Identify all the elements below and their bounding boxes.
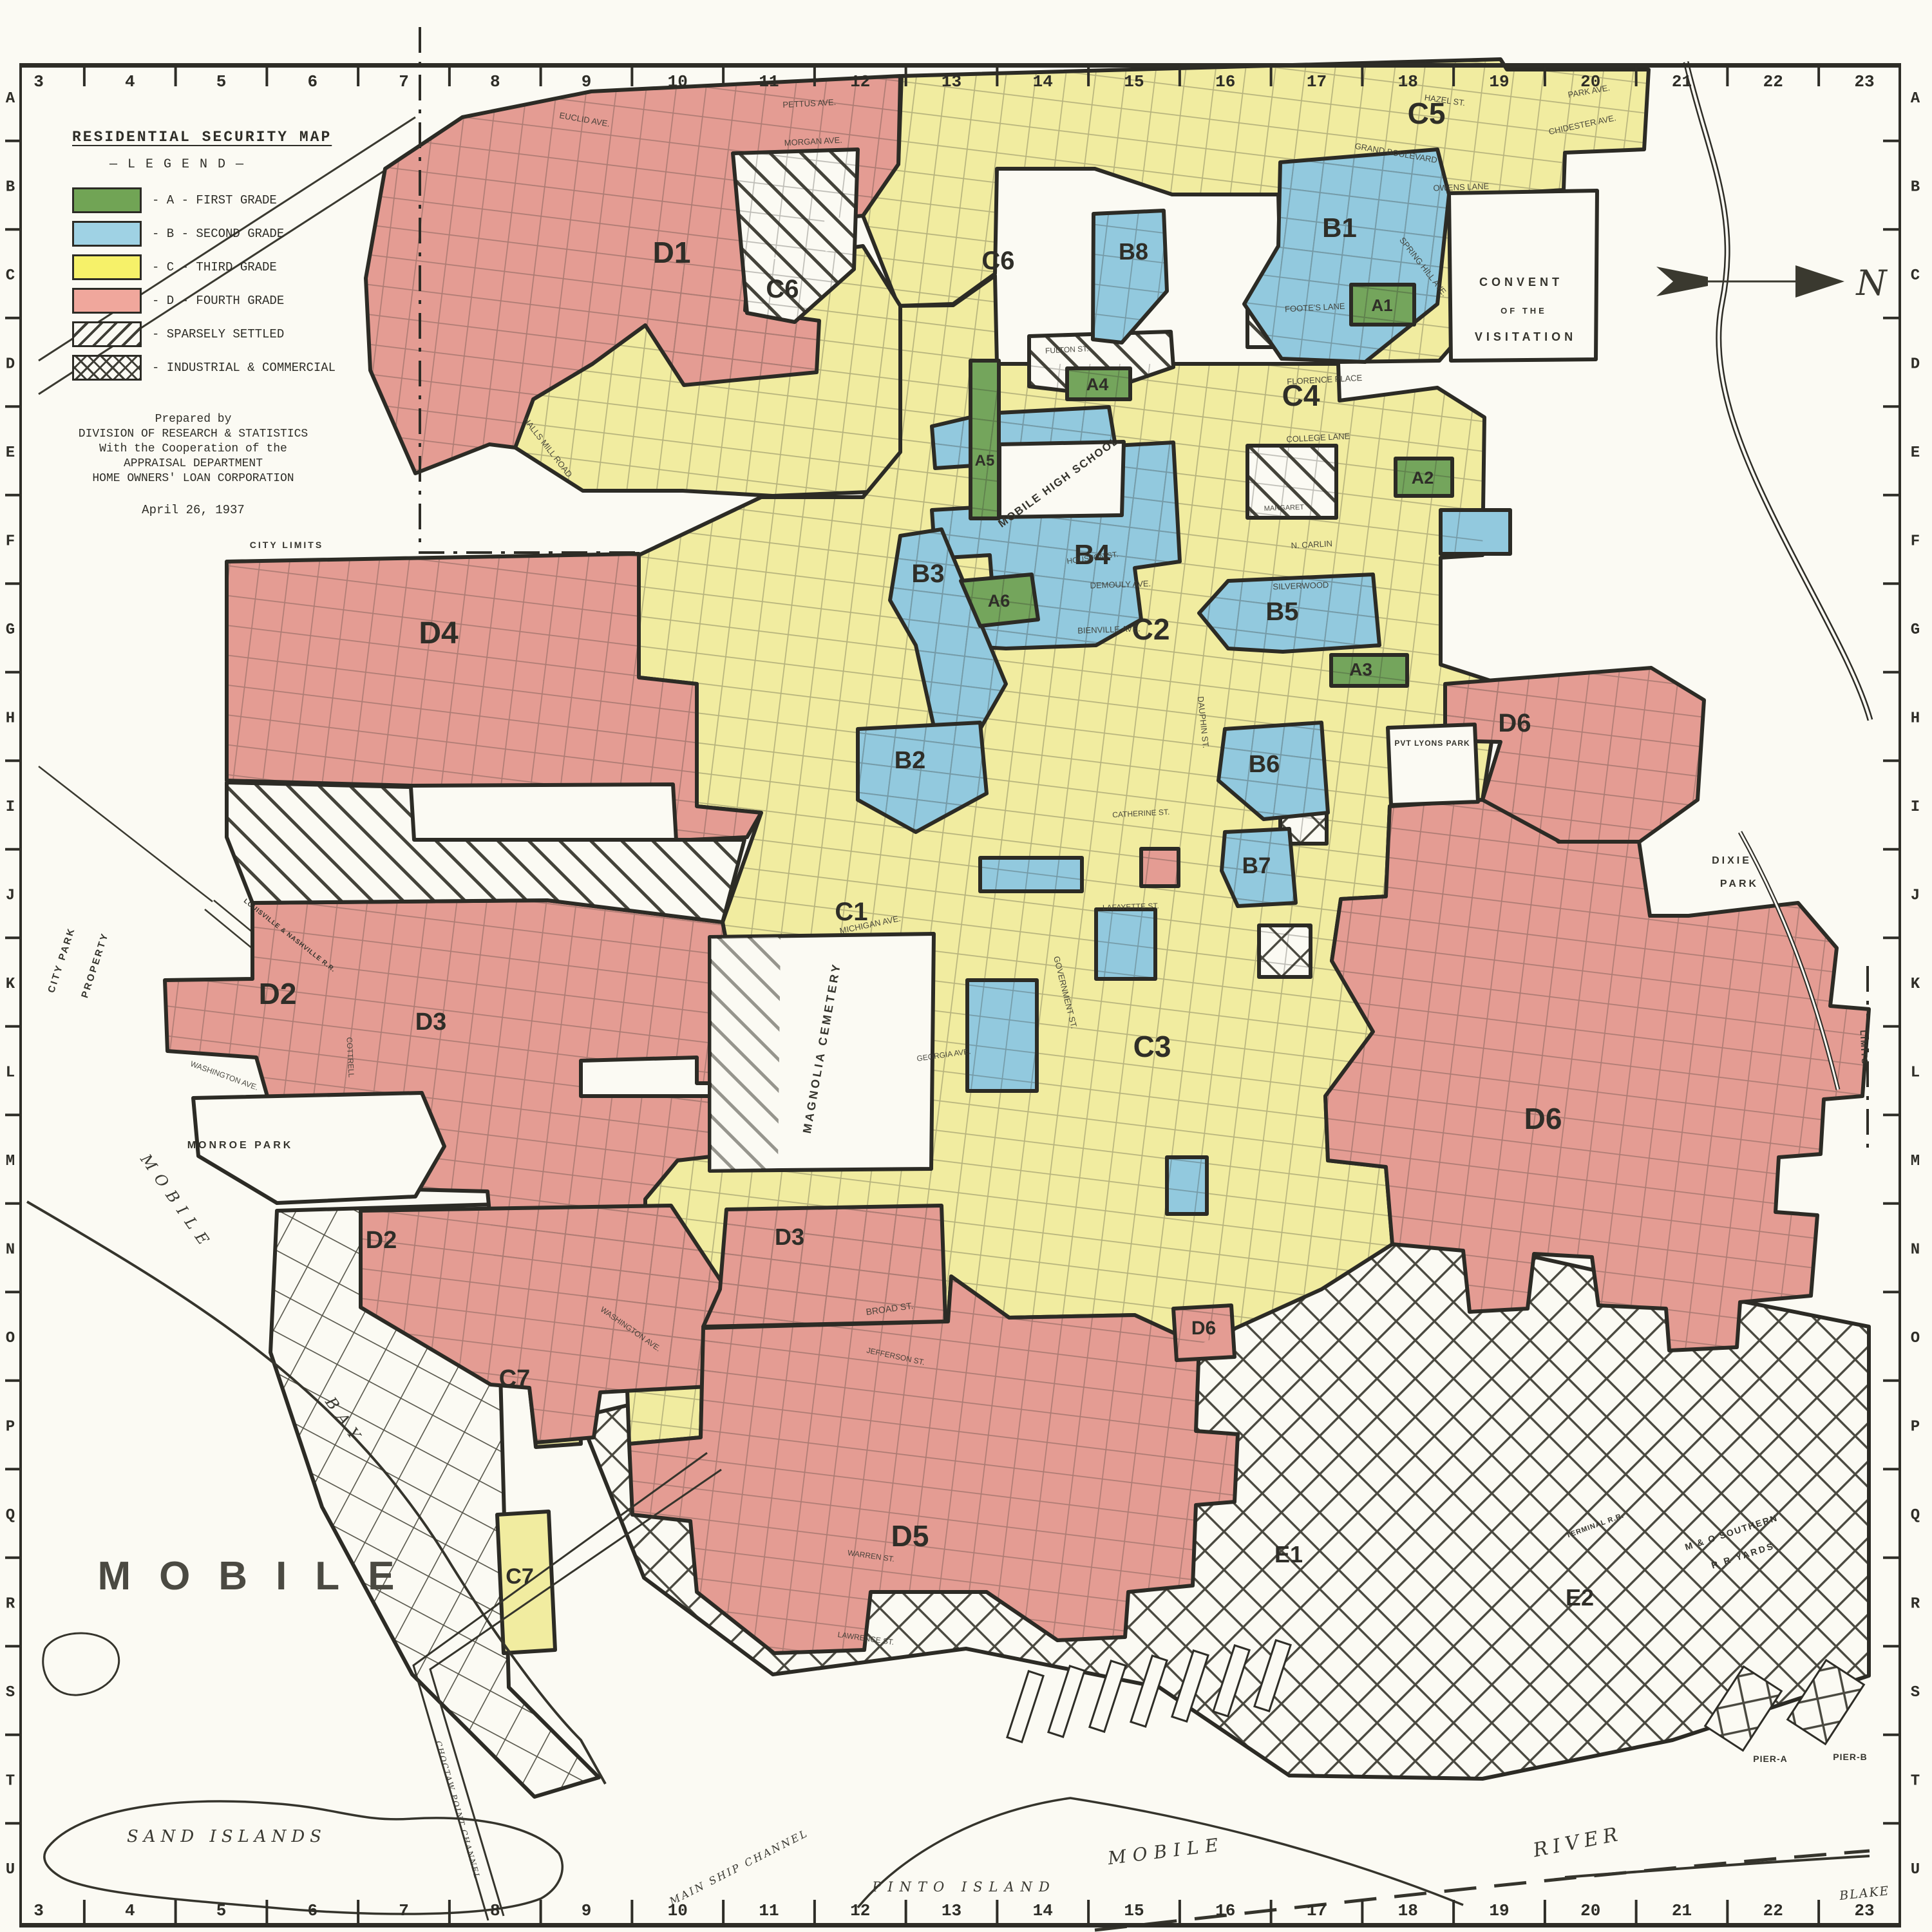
ruler-letter-left: M <box>6 1153 15 1170</box>
ruler-letter-right: J <box>1911 887 1920 905</box>
ruler-number-top: 22 <box>1763 72 1783 91</box>
credits-block: Prepared by DIVISION OF RESEARCH & STATI… <box>26 412 361 518</box>
ruler-tick <box>1883 1734 1901 1736</box>
ruler-letter-right: D <box>1911 356 1920 374</box>
ruler-number-bottom: 13 <box>942 1901 961 1920</box>
industrial-label: - INDUSTRIAL & COMMERCIAL <box>152 361 336 375</box>
sparsely-settled-label: - SPARSELY SETTLED <box>152 327 284 341</box>
ruler-tick <box>5 1734 22 1736</box>
place-label: CONVENT <box>1479 276 1563 289</box>
ruler-tick <box>1361 63 1363 86</box>
ruler-number-top: 18 <box>1398 72 1418 91</box>
ruler-tick <box>5 1822 22 1824</box>
ruler-tick <box>1883 1379 1901 1382</box>
ruler-tick <box>630 63 633 86</box>
credits-line: With the Cooperation of the <box>26 442 361 457</box>
ruler-tick <box>1883 1291 1901 1293</box>
ruler-tick <box>1452 1900 1455 1927</box>
ruler-number-top: 6 <box>307 72 317 91</box>
sparsely-settled-swatch <box>72 321 142 347</box>
place-label: VISITATION <box>1475 330 1577 343</box>
ruler-tick <box>5 228 22 231</box>
zone-label: D3 <box>415 1009 447 1036</box>
ruler-letter-right: S <box>1911 1684 1920 1701</box>
ruler-tick <box>996 1900 998 1927</box>
ruler-letter-left: A <box>6 90 15 108</box>
ruler-tick <box>1087 1900 1090 1927</box>
industrial-swatch <box>72 355 142 381</box>
ruler-letter-right: T <box>1911 1773 1920 1790</box>
ruler-tick <box>1883 1468 1901 1470</box>
ruler-tick <box>1179 1900 1181 1927</box>
ruler-number-bottom: 15 <box>1124 1901 1144 1920</box>
ruler-tick <box>5 1202 22 1205</box>
ruler-tick <box>1883 671 1901 674</box>
ruler-tick <box>5 848 22 851</box>
ruler-tick <box>905 1900 907 1927</box>
zone-label: E2 <box>1566 1584 1594 1611</box>
ruler-tick <box>1087 63 1090 86</box>
ruler-number-top: 5 <box>216 72 227 91</box>
place-label: DIXIE <box>1712 855 1752 866</box>
ruler-tick <box>265 1900 268 1927</box>
ruler-tick <box>905 63 907 86</box>
ruler-letter-right: M <box>1911 1153 1920 1170</box>
grade-b-label: - B - SECOND GRADE <box>152 227 284 241</box>
ruler-letter-right: K <box>1911 976 1920 993</box>
street-label: SILVERWOOD <box>1273 580 1329 591</box>
ruler-letter-right: U <box>1911 1861 1920 1879</box>
credits-line: Prepared by <box>26 412 361 427</box>
grade-c-swatch <box>72 254 142 280</box>
street-label: OWENS LANE <box>1433 181 1489 193</box>
grade-c-label: - C - THIRD GRADE <box>152 260 277 274</box>
zone-label: D6 <box>1524 1102 1562 1135</box>
zone-label: A1 <box>1371 296 1392 315</box>
ruler-number-bottom: 23 <box>1854 1901 1874 1920</box>
ruler-number-bottom: 4 <box>125 1901 135 1920</box>
ruler-letter-right: F <box>1911 533 1920 551</box>
ruler-tick <box>448 63 451 86</box>
ruler-tick <box>1726 1900 1728 1927</box>
water-label: SAND ISLANDS <box>127 1827 327 1846</box>
ruler-tick <box>5 494 22 497</box>
ruler-tick <box>1883 582 1901 585</box>
zone-label: C6 <box>981 247 1014 275</box>
grade-a-label: - A - FIRST GRADE <box>152 193 277 207</box>
ruler-tick <box>1544 1900 1546 1927</box>
credits-line: DIVISION OF RESEARCH & STATISTICS <box>26 427 361 442</box>
zone-label: B3 <box>911 560 944 588</box>
ruler-letter-left: J <box>6 887 15 905</box>
zone-label: C7 <box>506 1564 533 1589</box>
ruler-number-bottom: 16 <box>1215 1901 1235 1920</box>
ruler-tick <box>5 1113 22 1116</box>
place-label: CITY LIMITS <box>250 540 323 550</box>
ruler-number-top: 17 <box>1307 72 1327 91</box>
zone-label: D2 <box>366 1227 397 1254</box>
ruler-number-bottom: 20 <box>1580 1901 1600 1920</box>
zone-label: A4 <box>1086 375 1109 394</box>
place-label: PIER-B <box>1833 1752 1867 1762</box>
ruler-tick <box>5 1468 22 1470</box>
place-label: PVT LYONS PARK <box>1394 739 1470 748</box>
ruler-number-bottom: 18 <box>1398 1901 1418 1920</box>
ruler-letter-left: E <box>6 444 15 462</box>
ruler-tick <box>5 582 22 585</box>
ruler-number-top: 15 <box>1124 72 1144 91</box>
zone-label: B1 <box>1322 213 1357 243</box>
ruler-number-top: 20 <box>1580 72 1600 91</box>
zone-label: A5 <box>975 452 995 469</box>
ruler-letter-right: B <box>1911 179 1920 196</box>
ruler-tick <box>5 140 22 142</box>
ruler-number-bottom: 11 <box>759 1901 779 1920</box>
ruler-letter-left: S <box>6 1684 15 1701</box>
ruler-letter-left: K <box>6 976 15 993</box>
zone-label: C7 <box>499 1365 531 1392</box>
zone-label: D2 <box>259 977 297 1010</box>
ruler-tick <box>1883 1025 1901 1028</box>
zone-label: B8 <box>1119 238 1148 265</box>
ruler-tick <box>722 63 724 86</box>
ruler-letter-right: H <box>1911 710 1920 728</box>
left-ruler-bar <box>19 63 22 1927</box>
ruler-tick <box>5 936 22 939</box>
place-label: MOBILE <box>97 1554 422 1598</box>
ruler-tick <box>5 1645 22 1647</box>
ruler-letter-right: O <box>1911 1330 1920 1347</box>
ruler-tick <box>83 1900 86 1927</box>
zone-label: C6 <box>766 275 799 303</box>
zone-label: D5 <box>891 1519 929 1553</box>
ruler-number-top: 3 <box>33 72 44 91</box>
legend-row-b: - B - SECOND GRADE <box>72 221 459 247</box>
ruler-number-top: 13 <box>942 72 961 91</box>
ruler-number-bottom: 5 <box>216 1901 227 1920</box>
ruler-tick <box>5 317 22 319</box>
bottom-ruler-bar <box>19 1923 1901 1927</box>
zone-label: D4 <box>419 616 459 650</box>
map-title: RESIDENTIAL SECURITY MAP <box>72 129 459 146</box>
grade-a-swatch <box>72 187 142 213</box>
ruler-number-bottom: 12 <box>850 1901 870 1920</box>
ruler-tick <box>5 1025 22 1028</box>
ruler-number-top: 4 <box>125 72 135 91</box>
grade-d-swatch <box>72 288 142 314</box>
ruler-tick <box>357 63 359 86</box>
ruler-tick <box>265 63 268 86</box>
ruler-letter-right: R <box>1911 1596 1920 1613</box>
ruler-tick <box>5 405 22 408</box>
legend-row-industrial: - INDUSTRIAL & COMMERCIAL <box>72 355 459 381</box>
ruler-tick <box>1883 1113 1901 1116</box>
ruler-tick <box>1635 1900 1638 1927</box>
ruler-letter-right: G <box>1911 621 1920 639</box>
water-label: PINTO ISLAND <box>871 1879 1056 1895</box>
ruler-tick <box>1179 63 1181 86</box>
ruler-number-top: 21 <box>1672 72 1692 91</box>
ruler-letter-left: N <box>6 1242 15 1259</box>
ruler-tick <box>996 63 998 86</box>
ruler-tick <box>1270 63 1273 86</box>
ruler-number-top: 8 <box>490 72 500 91</box>
zone-label: A6 <box>988 591 1010 611</box>
ruler-number-bottom: 22 <box>1763 1901 1783 1920</box>
ruler-number-top: 10 <box>668 72 688 91</box>
legend-row-d: - D - FOURTH GRADE <box>72 288 459 314</box>
ruler-tick <box>1883 1557 1901 1559</box>
residential-security-map: N D1C6C6C5B1A1B8A4A5C4A2B4B5B3A6C2B2B6A3… <box>0 0 1932 1932</box>
ruler-tick <box>1726 63 1728 86</box>
grade-d-label: - D - FOURTH GRADE <box>152 294 284 308</box>
ruler-tick <box>1270 1900 1273 1927</box>
ruler-number-bottom: 14 <box>1033 1901 1053 1920</box>
ruler-number-bottom: 9 <box>582 1901 592 1920</box>
ruler-letter-right: Q <box>1911 1507 1920 1524</box>
ruler-tick <box>813 1900 816 1927</box>
ruler-tick <box>1883 936 1901 939</box>
cemetery-hatch <box>711 937 781 1170</box>
lyons-park-block <box>1388 724 1478 805</box>
legend-subtitle: — L E G E N D — <box>109 157 459 172</box>
ruler-tick <box>1883 759 1901 762</box>
zone-label: B7 <box>1242 853 1271 878</box>
ruler-tick <box>1883 140 1901 142</box>
ruler-letter-right: I <box>1911 799 1920 816</box>
ruler-number-top: 12 <box>850 72 870 91</box>
zone-label: D1 <box>653 236 691 269</box>
legend-row-c: - C - THIRD GRADE <box>72 254 459 280</box>
ruler-tick <box>1883 317 1901 319</box>
ruler-letter-left: H <box>6 710 15 728</box>
ruler-number-bottom: 7 <box>399 1901 409 1920</box>
ruler-letter-left: P <box>6 1419 15 1436</box>
ruler-tick <box>540 63 542 86</box>
ruler-letter-left: F <box>6 533 15 551</box>
street-label: MARGARET <box>1264 504 1305 513</box>
zone-label: E1 <box>1274 1541 1303 1567</box>
place-label: MONROE PARK <box>187 1140 294 1151</box>
ruler-tick <box>1883 848 1901 851</box>
ruler-letter-left: I <box>6 799 15 816</box>
ruler-number-bottom: 19 <box>1489 1901 1509 1920</box>
place-label: PARK <box>1720 878 1759 889</box>
ruler-letter-right: E <box>1911 444 1920 462</box>
ruler-letter-right: C <box>1911 267 1920 285</box>
ruler-number-top: 11 <box>759 72 779 91</box>
map-date: April 26, 1937 <box>26 503 361 518</box>
place-label: OF THE <box>1501 306 1547 316</box>
ruler-tick <box>175 1900 177 1927</box>
ruler-letter-left: O <box>6 1330 15 1347</box>
grade-b-swatch <box>72 221 142 247</box>
top-ruler-bar <box>19 63 1901 68</box>
ruler-letter-right: P <box>1911 1419 1920 1436</box>
ruler-number-bottom: 6 <box>307 1901 317 1920</box>
ruler-letter-left: Q <box>6 1507 15 1524</box>
ruler-tick <box>357 1900 359 1927</box>
ruler-tick <box>5 759 22 762</box>
zone-label: A2 <box>1412 468 1434 488</box>
legend-panel: RESIDENTIAL SECURITY MAP — L E G E N D —… <box>72 129 459 388</box>
ruler-number-top: 14 <box>1033 72 1053 91</box>
ruler-letter-left: B <box>6 179 15 196</box>
ruler-tick <box>5 671 22 674</box>
ruler-letter-left: T <box>6 1773 15 1790</box>
ruler-tick <box>1883 1822 1901 1824</box>
ruler-tick <box>5 1291 22 1293</box>
ruler-letter-left: C <box>6 267 15 285</box>
ruler-tick <box>540 1900 542 1927</box>
ruler-tick <box>1544 63 1546 86</box>
ruler-tick <box>1883 228 1901 231</box>
ruler-number-top: 7 <box>399 72 409 91</box>
legend-row-a: - A - FIRST GRADE <box>72 187 459 213</box>
zone-label: B5 <box>1265 598 1298 626</box>
legend-row-sparse: - SPARSELY SETTLED <box>72 321 459 347</box>
ruler-tick <box>630 1900 633 1927</box>
ruler-number-top: 19 <box>1489 72 1509 91</box>
place-label: PIER-A <box>1753 1754 1787 1764</box>
compass-north-label: N <box>1855 263 1888 303</box>
ruler-letter-right: L <box>1911 1065 1920 1082</box>
ruler-number-top: 9 <box>582 72 592 91</box>
credits-line: APPRAISAL DEPARTMENT <box>26 457 361 471</box>
ruler-tick <box>448 1900 451 1927</box>
ruler-number-top: 16 <box>1215 72 1235 91</box>
ruler-tick <box>1817 1900 1820 1927</box>
ruler-tick <box>1883 494 1901 497</box>
ruler-tick <box>1883 1645 1901 1647</box>
zone-label: D6 <box>1191 1318 1216 1339</box>
ruler-letter-left: G <box>6 621 15 639</box>
ruler-tick <box>83 63 86 86</box>
zone-label: B6 <box>1249 751 1280 778</box>
ruler-letter-right: N <box>1911 1242 1920 1259</box>
ruler-letter-left: L <box>6 1065 15 1082</box>
ruler-tick <box>1635 63 1638 86</box>
credits-line: HOME OWNERS' LOAN CORPORATION <box>26 471 361 486</box>
ruler-tick <box>1817 63 1820 86</box>
zone-label: A3 <box>1349 659 1372 679</box>
ruler-letter-left: U <box>6 1861 15 1879</box>
ruler-tick <box>1452 63 1455 86</box>
ruler-tick <box>5 1379 22 1382</box>
ruler-tick <box>1883 405 1901 408</box>
place-label: LIMITS <box>1859 1030 1870 1065</box>
ruler-number-top: 23 <box>1854 72 1874 91</box>
zone-label: D3 <box>775 1224 804 1250</box>
ruler-number-bottom: 10 <box>668 1901 688 1920</box>
ruler-tick <box>5 1557 22 1559</box>
ruler-letter-right: A <box>1911 90 1920 108</box>
ruler-number-bottom: 21 <box>1672 1901 1692 1920</box>
zone-label: D6 <box>1498 709 1531 737</box>
right-ruler-bar <box>1899 63 1901 1927</box>
ruler-letter-left: D <box>6 356 15 374</box>
ruler-tick <box>175 63 177 86</box>
ruler-number-bottom: 3 <box>33 1901 44 1920</box>
ruler-number-bottom: 17 <box>1307 1901 1327 1920</box>
ruler-tick <box>722 1900 724 1927</box>
ruler-letter-left: R <box>6 1596 15 1613</box>
ruler-number-bottom: 8 <box>490 1901 500 1920</box>
zone-label: C3 <box>1133 1030 1171 1063</box>
zone-label: B2 <box>895 747 926 774</box>
ruler-tick <box>813 63 816 86</box>
ruler-tick <box>1361 1900 1363 1927</box>
ruler-tick <box>1883 1202 1901 1205</box>
